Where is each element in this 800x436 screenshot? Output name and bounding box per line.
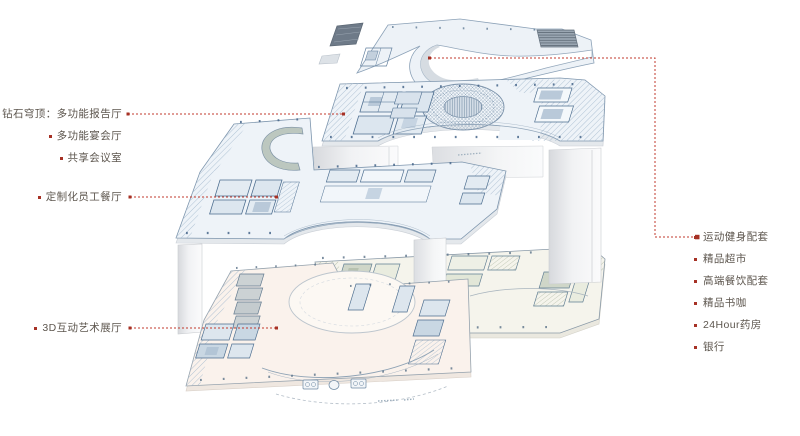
bullet-square-icon (38, 196, 41, 199)
bullet-square-icon (49, 135, 52, 138)
plate3-room-cluster-mid (320, 170, 436, 202)
label-bank: 银行 (694, 340, 725, 354)
annotation-text: 3D互动艺术展厅 (42, 321, 122, 335)
label-shared-meeting-room: 共享会议室 (60, 151, 123, 165)
annotation-text: 银行 (703, 340, 725, 354)
bullet-square-icon (694, 346, 697, 349)
bullet-square-icon (694, 302, 697, 305)
annotation-text: 精品书咖 (703, 296, 747, 310)
bullet-square-icon (694, 280, 697, 283)
floor-plan-svg (0, 0, 800, 436)
label-3d-art-gallery: 3D互动艺术展厅 (34, 321, 122, 335)
bullet-square-icon (694, 324, 697, 327)
annotation-text: 高端餐饮配套 (703, 274, 768, 288)
annotation-text: 定制化员工餐厅 (46, 190, 122, 204)
bullet-square-icon (694, 236, 697, 239)
annotation-text: 24Hour药房 (703, 318, 762, 332)
exploded-floorplan-diagram: 钻石穹顶：多功能报告厅 多功能宴会厅 共享会议室 定制化员工餐厅 3D互动艺术展… (0, 0, 800, 436)
label-fitness: 运动健身配套 (694, 230, 768, 244)
bullet-square-icon (34, 327, 37, 330)
bullet-square-icon (694, 258, 697, 261)
label-book-cafe: 精品书咖 (694, 296, 747, 310)
label-pharmacy: 24Hour药房 (694, 318, 762, 332)
bullet-square-icon (60, 157, 63, 160)
annotation-text: 钻石穹顶：多功能报告厅 (2, 107, 122, 121)
label-dome-report-hall: 钻石穹顶：多功能报告厅 (0, 107, 122, 121)
label-dining: 高端餐饮配套 (694, 274, 768, 288)
annotation-text: 运动健身配套 (703, 230, 768, 244)
plate-dome-level (322, 78, 605, 146)
label-staff-canteen: 定制化员工餐厅 (38, 190, 122, 204)
annotation-text: 共享会议室 (68, 151, 123, 165)
annotation-text: 精品超市 (703, 252, 747, 266)
label-boutique-supermarket: 精品超市 (694, 252, 747, 266)
entrance-doors (303, 379, 366, 390)
annotation-text: 多功能宴会厅 (57, 129, 122, 143)
label-banquet-hall: 多功能宴会厅 (49, 129, 122, 143)
skylight-panel (330, 23, 363, 46)
